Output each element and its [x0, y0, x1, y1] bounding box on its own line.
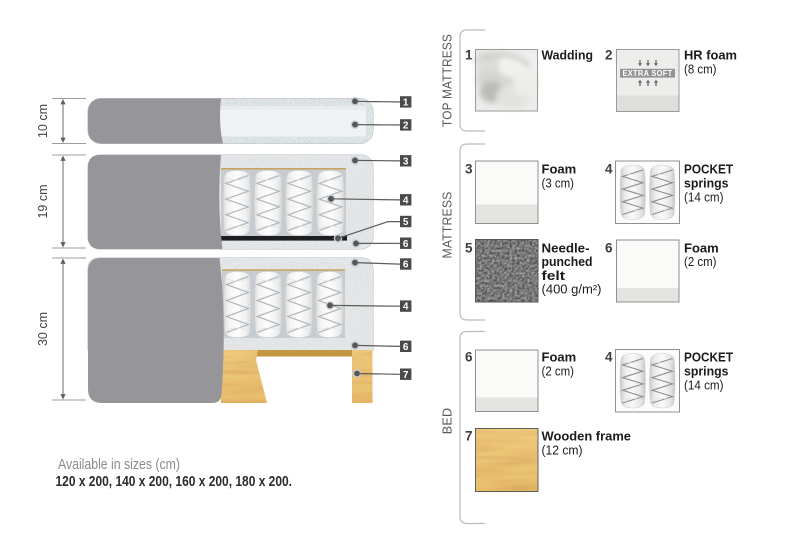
svg-text:4: 4: [605, 162, 613, 177]
svg-text:10 cm: 10 cm: [36, 104, 50, 138]
svg-text:6: 6: [403, 239, 409, 250]
svg-text:felt: felt: [542, 268, 566, 283]
svg-text:(400 g/m²): (400 g/m²): [542, 282, 602, 297]
svg-text:6: 6: [403, 260, 409, 271]
svg-text:(14 cm): (14 cm): [684, 190, 724, 205]
svg-text:30 cm: 30 cm: [36, 312, 50, 346]
svg-text:MATTRESS: MATTRESS: [441, 192, 455, 259]
svg-text:7: 7: [403, 370, 409, 381]
svg-text:6: 6: [403, 342, 409, 353]
svg-text:(8 cm): (8 cm): [684, 62, 717, 77]
svg-text:2: 2: [605, 48, 613, 63]
svg-text:1: 1: [403, 98, 409, 109]
svg-text:4: 4: [403, 195, 409, 206]
svg-text:springs: springs: [684, 176, 729, 191]
svg-text:6: 6: [605, 240, 613, 255]
svg-text:Foam: Foam: [542, 162, 577, 177]
svg-text:5: 5: [465, 240, 473, 255]
svg-text:(2 cm): (2 cm): [542, 364, 575, 379]
svg-text:3: 3: [465, 162, 473, 177]
svg-text:(14 cm): (14 cm): [684, 377, 724, 392]
svg-text:6: 6: [465, 350, 473, 365]
svg-text:4: 4: [605, 350, 613, 365]
svg-text:Foam: Foam: [542, 350, 577, 365]
svg-text:7: 7: [465, 428, 473, 443]
svg-text:POCKET: POCKET: [684, 162, 733, 177]
svg-text:(12 cm): (12 cm): [542, 442, 583, 457]
svg-text:Wadding: Wadding: [542, 48, 594, 63]
svg-text:BED: BED: [441, 408, 455, 435]
svg-text:HR foam: HR foam: [684, 48, 737, 63]
svg-text:(3 cm): (3 cm): [542, 176, 575, 191]
svg-text:19 cm: 19 cm: [36, 184, 50, 218]
svg-text:punched: punched: [542, 254, 593, 269]
svg-text:TOP MATTRESS: TOP MATTRESS: [441, 34, 455, 127]
svg-text:4: 4: [403, 302, 409, 313]
svg-text:(2 cm): (2 cm): [684, 254, 717, 269]
svg-text:EXTRA SOFT: EXTRA SOFT: [623, 69, 673, 78]
svg-text:Foam: Foam: [684, 240, 719, 255]
svg-text:1: 1: [465, 48, 473, 63]
svg-text:springs: springs: [684, 364, 729, 379]
svg-text:Available in sizes (cm): Available in sizes (cm): [58, 457, 180, 473]
svg-text:Wooden frame: Wooden frame: [542, 428, 632, 443]
svg-text:120 x 200, 140 x 200, 160 x 20: 120 x 200, 140 x 200, 160 x 200, 180 x 2…: [56, 474, 293, 490]
svg-text:Needle-: Needle-: [542, 240, 590, 255]
svg-text:3: 3: [403, 156, 409, 167]
svg-text:2: 2: [403, 121, 409, 132]
svg-text:5: 5: [403, 217, 409, 228]
svg-text:POCKET: POCKET: [684, 350, 733, 365]
